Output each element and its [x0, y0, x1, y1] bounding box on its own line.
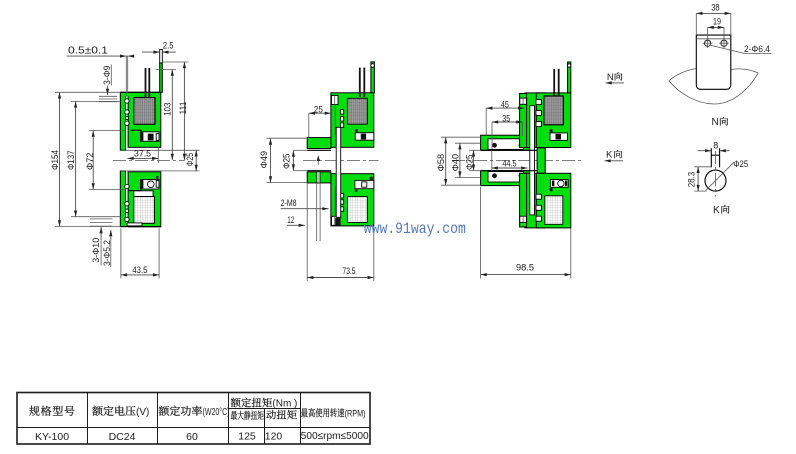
- svg-text:(V): (V): [136, 407, 149, 418]
- svg-text:60: 60: [186, 431, 198, 443]
- svg-text:44.5: 44.5: [503, 159, 517, 169]
- svg-text:DC24: DC24: [109, 431, 136, 443]
- svg-text:500≤rpm≤5000: 500≤rpm≤5000: [301, 430, 369, 442]
- svg-text:Φ40: Φ40: [450, 154, 460, 172]
- svg-text:K: K: [713, 205, 720, 216]
- svg-text:2-Φ6.4: 2-Φ6.4: [744, 44, 770, 54]
- svg-text:Φ49: Φ49: [259, 151, 269, 169]
- svg-text:73.5: 73.5: [343, 266, 356, 276]
- svg-text:0.5±0.1: 0.5±0.1: [68, 45, 108, 57]
- svg-text:Φ25: Φ25: [282, 154, 292, 170]
- svg-text:19: 19: [713, 16, 721, 26]
- svg-text:38: 38: [711, 2, 720, 12]
- svg-text:2-M8: 2-M8: [281, 198, 297, 208]
- svg-text:Φ25: Φ25: [185, 153, 195, 167]
- svg-text:www.91way.com: www.91way.com: [364, 220, 466, 238]
- svg-text:KY-100: KY-100: [35, 431, 69, 443]
- svg-text:3-Φ5.2: 3-Φ5.2: [102, 240, 112, 266]
- svg-text:98.5: 98.5: [516, 262, 534, 272]
- svg-text:3-Φ9: 3-Φ9: [102, 66, 112, 86]
- svg-text:N: N: [712, 117, 719, 128]
- svg-text:(RPM): (RPM): [345, 409, 366, 420]
- svg-text:111: 111: [178, 102, 188, 115]
- svg-text:37.5: 37.5: [134, 149, 151, 159]
- svg-text:103: 103: [163, 103, 173, 117]
- svg-text:120: 120: [265, 431, 283, 443]
- svg-text:Φ58: Φ58: [436, 154, 446, 172]
- svg-text:K: K: [606, 150, 613, 161]
- svg-text:8: 8: [713, 140, 718, 150]
- svg-text:Φ154: Φ154: [50, 150, 60, 170]
- svg-text:43.5: 43.5: [132, 265, 147, 275]
- svg-text:(Nm ): (Nm ): [272, 399, 297, 410]
- svg-text:3-Φ10: 3-Φ10: [91, 238, 101, 263]
- svg-text:28.3: 28.3: [686, 172, 696, 188]
- svg-text:2.5: 2.5: [163, 41, 174, 51]
- svg-text:N: N: [607, 72, 614, 83]
- svg-text:Φ25: Φ25: [733, 159, 748, 169]
- svg-text:Φ72: Φ72: [85, 153, 95, 171]
- svg-text:(W20°C): (W20°C): [203, 407, 230, 418]
- svg-text:12: 12: [287, 215, 294, 225]
- svg-text:125: 125: [238, 431, 256, 443]
- svg-text:Φ137: Φ137: [66, 151, 76, 171]
